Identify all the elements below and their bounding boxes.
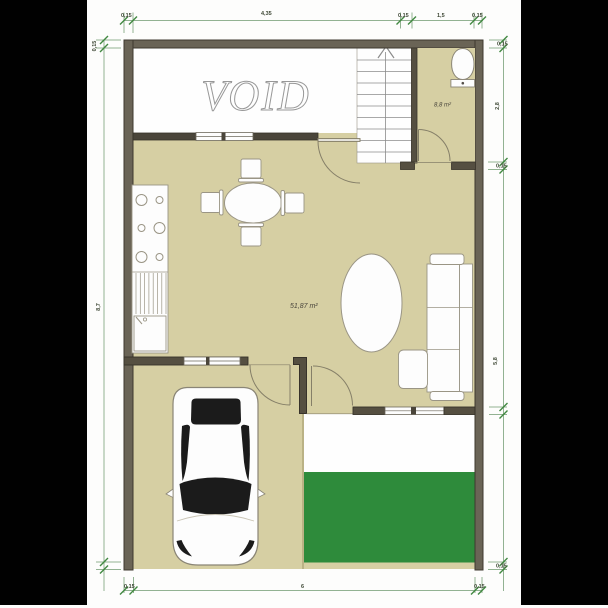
- svg-text:VOID: VOID: [201, 73, 310, 120]
- svg-text:0,15: 0,15: [92, 41, 98, 52]
- svg-text:0,15: 0,15: [496, 564, 507, 570]
- svg-text:0,15: 0,15: [121, 13, 132, 19]
- svg-text:8,7: 8,7: [96, 303, 102, 311]
- svg-text:6: 6: [301, 584, 304, 590]
- svg-text:0,15: 0,15: [472, 13, 483, 19]
- svg-text:5,8: 5,8: [493, 357, 499, 365]
- svg-text:4,35: 4,35: [261, 11, 272, 17]
- svg-text:0,15: 0,15: [474, 584, 485, 590]
- svg-text:8,8 m²: 8,8 m²: [434, 103, 452, 109]
- svg-text:0,15: 0,15: [496, 164, 507, 170]
- svg-text:2,8: 2,8: [495, 102, 501, 110]
- svg-text:1,5: 1,5: [437, 13, 445, 19]
- svg-text:51,87 m²: 51,87 m²: [290, 303, 318, 310]
- svg-text:0,15: 0,15: [398, 13, 409, 19]
- svg-text:0,15: 0,15: [497, 42, 508, 48]
- svg-text:0,15: 0,15: [124, 584, 135, 590]
